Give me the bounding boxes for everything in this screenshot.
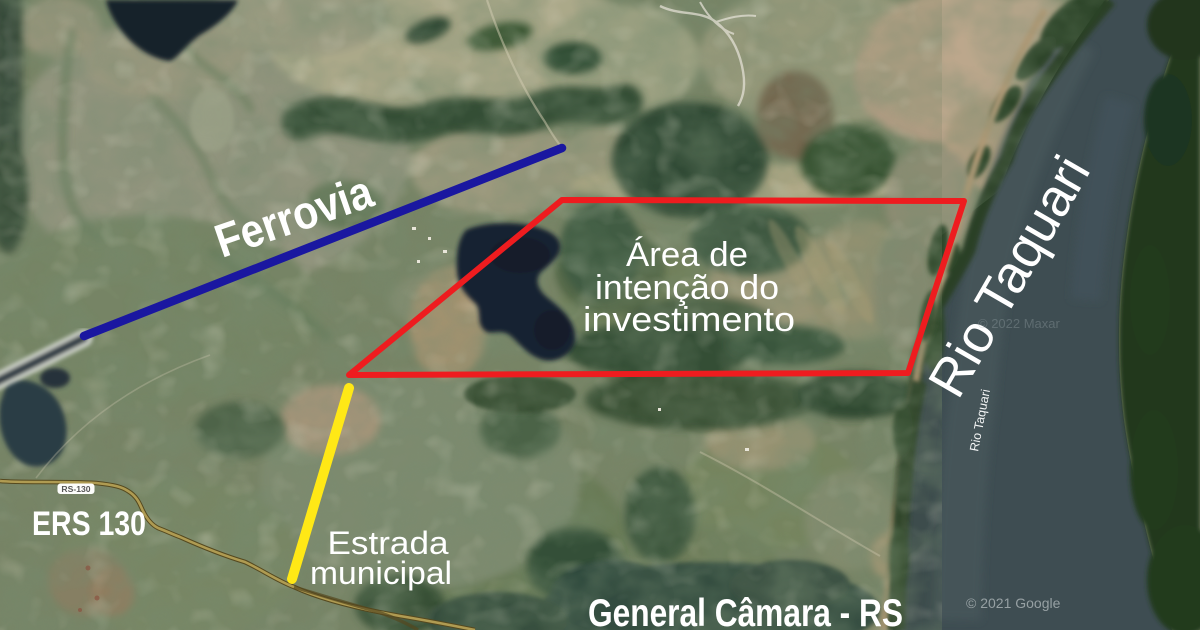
svg-text:RS-130: RS-130 bbox=[61, 484, 90, 494]
svg-text:investimento: investimento bbox=[583, 301, 795, 339]
svg-text:municipal: municipal bbox=[310, 555, 452, 591]
svg-text:General Câmara - RS: General Câmara - RS bbox=[588, 592, 903, 630]
svg-text:© 2021 Google: © 2021 Google bbox=[966, 595, 1061, 611]
svg-text:ERS 130: ERS 130 bbox=[32, 505, 146, 543]
svg-text:© 2022 Maxar: © 2022 Maxar bbox=[978, 316, 1061, 331]
